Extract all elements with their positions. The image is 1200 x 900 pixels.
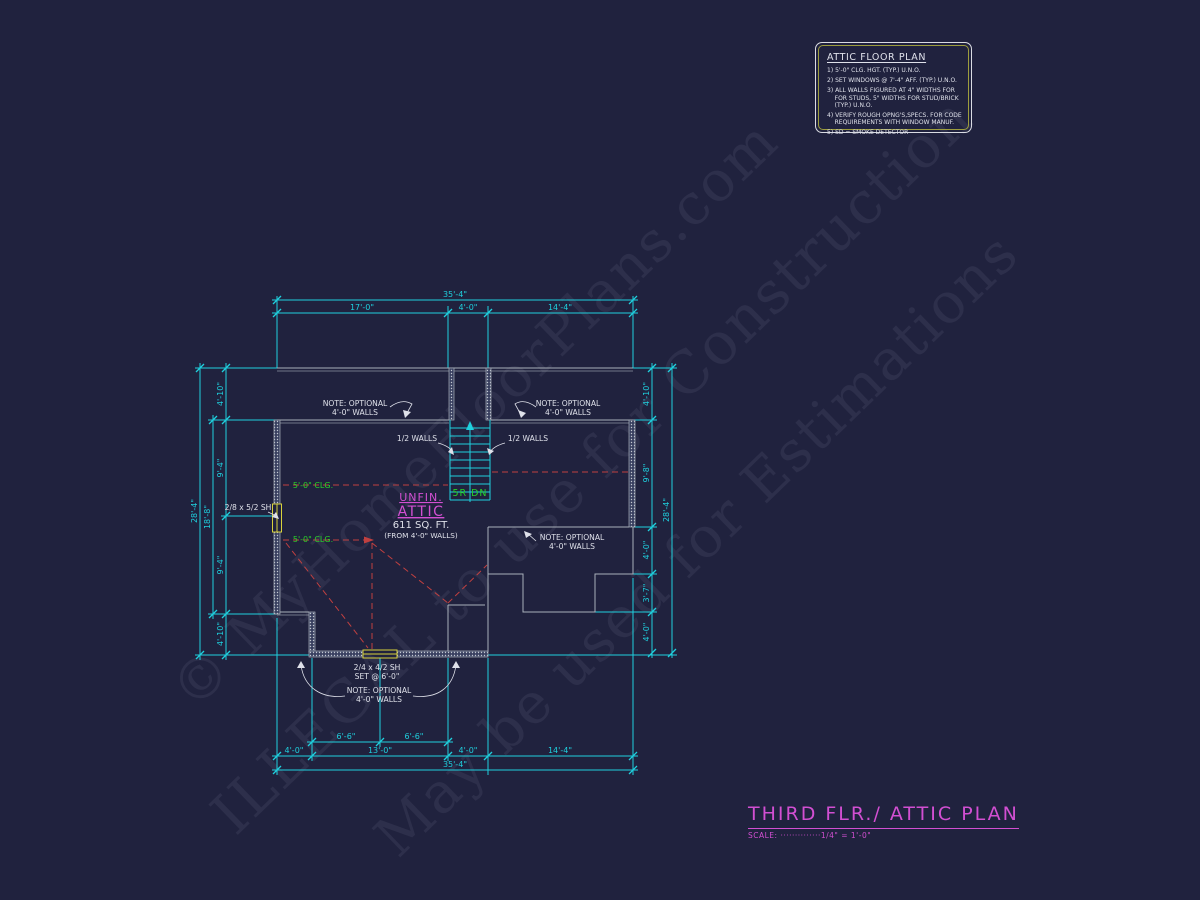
floor-plan-svg: 35'-4"17'-0"4'-0"14'-4"6'-6"6'-6"4'-0"13… — [0, 0, 1200, 900]
sheet-title-block: THIRD FLR./ ATTIC PLAN SCALE: ··········… — [748, 803, 1019, 840]
room-area: 611 SQ. FT. — [393, 520, 450, 531]
label-clg-upper: 5'-0" CLG. — [293, 481, 333, 490]
attic-notes-box: ATTIC FLOOR PLAN 1) 5'-0" CLG. HGT. (TYP… — [815, 42, 972, 133]
room-name-line2: ATTIC — [398, 504, 445, 520]
windows — [273, 504, 398, 658]
attic-note: 3) ALL WALLS FIGURED AT 4" WIDTHS FOR FO… — [827, 87, 960, 109]
notes-list: 1) 5'-0" CLG. HGT. (TYP.) U.N.O.2) SET W… — [827, 67, 960, 137]
note-optional-midright-line1: NOTE: OPTIONAL — [540, 533, 605, 542]
notes-box-title: ATTIC FLOOR PLAN — [827, 52, 960, 63]
plan-text-labels: 35'-4"17'-0"4'-0"14'-4"6'-6"6'-6"4'-0"13… — [190, 290, 671, 769]
dim-left-seg4: 4'-10" — [216, 622, 225, 646]
dim-bottom-144: 14'-4" — [548, 746, 572, 755]
attic-notes-inner-border: ATTIC FLOOR PLAN 1) 5'-0" CLG. HGT. (TYP… — [818, 45, 969, 130]
label-stair-run: 5R DN — [452, 488, 487, 499]
room-name-line1: UNFIN. — [399, 491, 443, 504]
dim-left-inner: 18'-8" — [203, 505, 212, 529]
dim-left-seg3: 9'-4" — [216, 556, 225, 575]
dim-left-seg2: 9'-4" — [216, 459, 225, 478]
room-area-note: (FROM 4'-0" WALLS) — [384, 531, 458, 540]
note-optional-midright-line2: 4'-0" WALLS — [549, 542, 595, 551]
dim-top-left: 17'-0" — [350, 303, 374, 312]
label-half-walls-right: 1/2 WALLS — [508, 434, 548, 443]
cad-drawing-canvas: © MyHomeFloorPlans.com ILLEGAL to use fo… — [0, 0, 1200, 900]
dim-top-right: 14'-4" — [548, 303, 572, 312]
attic-note: 2) SET WINDOWS @ 7'-4" AFF. (TYP.) U.N.O… — [827, 77, 960, 84]
attic-note: 1) 5'-0" CLG. HGT. (TYP.) U.N.O. — [827, 67, 960, 74]
dim-right-seg2: 9'-8" — [642, 464, 651, 483]
dim-right-overall: 28'-4" — [662, 498, 671, 522]
dim-bottom-40-left: 4'-0" — [285, 746, 304, 755]
dim-right-seg1: 4'-10" — [642, 382, 651, 406]
note-optional-topleft-line2: 4'-0" WALLS — [332, 408, 378, 417]
dim-right-seg3: 4'-0" — [642, 541, 651, 560]
note-optional-topleft-line1: NOTE: OPTIONAL — [323, 399, 388, 408]
label-half-walls-left: 1/2 WALLS — [397, 434, 437, 443]
attic-note: 4) VERIFY ROUGH OPNG'S,SPECS. FOR CODE R… — [827, 112, 960, 127]
dim-top-stair: 4'-0" — [459, 303, 478, 312]
label-window-bottom-line1: 2/4 x 4/2 SH — [354, 663, 401, 672]
dim-right-seg5: 4'-0" — [642, 623, 651, 642]
sheet-title: THIRD FLR./ ATTIC PLAN — [748, 803, 1019, 829]
note-optional-topright-line2: 4'-0" WALLS — [545, 408, 591, 417]
note-optional-bottom-line1: NOTE: OPTIONAL — [347, 686, 412, 695]
label-window-bottom-line2: SET @ 6'-0" — [355, 672, 400, 681]
dim-bottom-66-left: 6'-6" — [337, 732, 356, 741]
dim-left-seg1: 4'-10" — [216, 382, 225, 406]
dim-top-overall: 35'-4" — [443, 290, 467, 299]
dim-bottom-overall: 35'-4" — [443, 760, 467, 769]
dim-bottom-130: 13'-0" — [368, 746, 392, 755]
label-clg-lower: 5'-0" CLG. — [293, 535, 333, 544]
dim-bottom-40-mid: 4'-0" — [459, 746, 478, 755]
note-optional-topright-line1: NOTE: OPTIONAL — [536, 399, 601, 408]
dim-left-overall: 28'-4" — [190, 499, 199, 523]
dim-bottom-66-right: 6'-6" — [405, 732, 424, 741]
dim-right-seg4: 3'-7" — [642, 584, 651, 603]
label-window-left: 2/8 x 5/2 SH — [225, 503, 272, 512]
note-optional-bottom-line2: 4'-0" WALLS — [356, 695, 402, 704]
attic-note: 5) SD = SMOKE DETECTOR — [827, 129, 960, 136]
sheet-scale: SCALE: ··············1/4" = 1'-0" — [748, 831, 1019, 840]
